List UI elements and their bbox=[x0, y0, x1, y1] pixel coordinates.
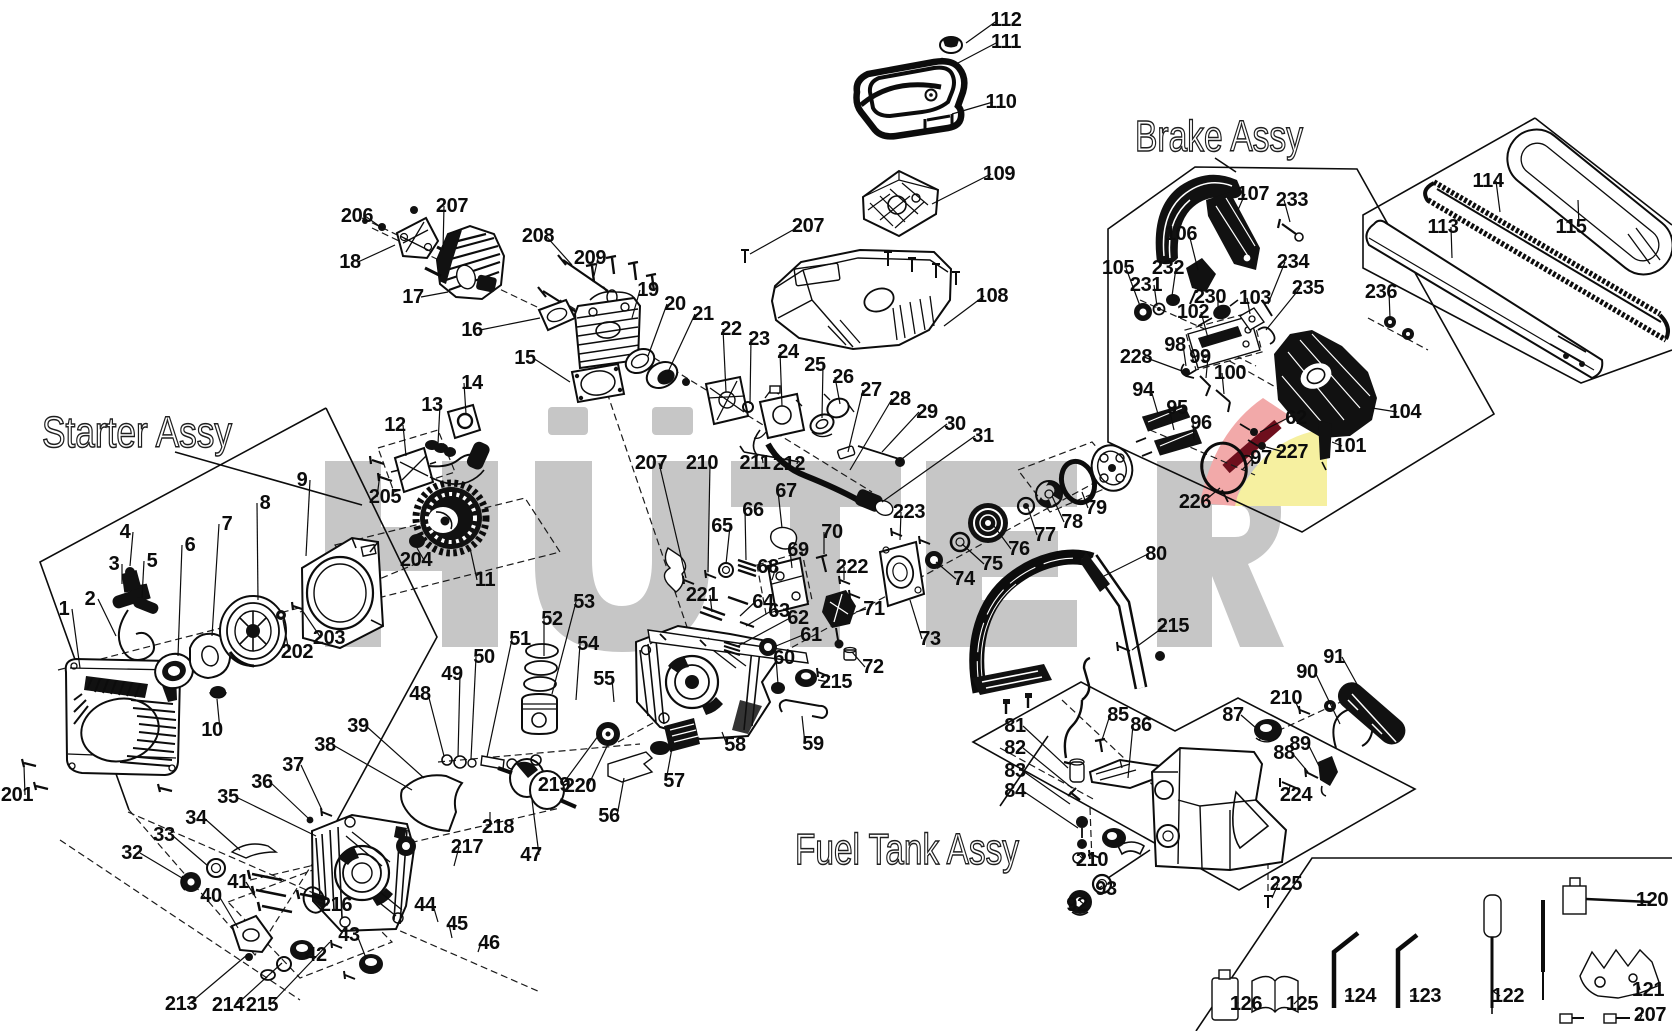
svg-text:210: 210 bbox=[1270, 687, 1302, 709]
svg-text:97: 97 bbox=[1250, 447, 1272, 469]
svg-text:124: 124 bbox=[1344, 985, 1377, 1007]
svg-text:76: 76 bbox=[1008, 538, 1030, 560]
svg-text:62: 62 bbox=[787, 607, 809, 629]
svg-text:26: 26 bbox=[832, 366, 854, 388]
svg-text:15: 15 bbox=[514, 347, 536, 369]
svg-text:70: 70 bbox=[821, 521, 843, 543]
svg-text:96: 96 bbox=[1190, 412, 1212, 434]
svg-text:226: 226 bbox=[1179, 491, 1211, 513]
svg-text:3: 3 bbox=[109, 553, 120, 575]
svg-text:223: 223 bbox=[893, 501, 925, 523]
svg-text:81: 81 bbox=[1004, 715, 1026, 737]
svg-text:34: 34 bbox=[185, 807, 208, 829]
svg-text:80: 80 bbox=[1145, 543, 1167, 565]
svg-text:6: 6 bbox=[185, 534, 196, 556]
svg-text:214: 214 bbox=[212, 994, 245, 1016]
svg-text:208: 208 bbox=[522, 225, 554, 247]
svg-text:43: 43 bbox=[338, 924, 360, 946]
svg-text:72: 72 bbox=[862, 656, 884, 678]
svg-text:44: 44 bbox=[414, 894, 437, 916]
svg-text:21: 21 bbox=[692, 303, 714, 325]
svg-text:90: 90 bbox=[1296, 661, 1318, 683]
svg-text:104: 104 bbox=[1389, 401, 1422, 423]
svg-text:32: 32 bbox=[121, 842, 143, 864]
svg-text:40: 40 bbox=[200, 885, 222, 907]
svg-text:18: 18 bbox=[339, 251, 361, 273]
svg-text:Fuel Tank Assy: Fuel Tank Assy bbox=[795, 825, 1019, 874]
svg-text:233: 233 bbox=[1276, 189, 1308, 211]
svg-text:74: 74 bbox=[953, 568, 976, 590]
svg-text:215: 215 bbox=[820, 671, 852, 693]
svg-text:53: 53 bbox=[573, 591, 595, 613]
svg-text:59: 59 bbox=[802, 733, 824, 755]
svg-text:115: 115 bbox=[1555, 216, 1586, 238]
svg-text:62: 62 bbox=[1285, 407, 1307, 429]
svg-text:102: 102 bbox=[1177, 301, 1209, 323]
svg-text:113: 113 bbox=[1427, 216, 1458, 238]
svg-text:210: 210 bbox=[1076, 849, 1108, 871]
svg-text:109: 109 bbox=[983, 163, 1015, 185]
svg-text:77: 77 bbox=[1034, 524, 1056, 546]
svg-text:94: 94 bbox=[1132, 379, 1155, 401]
svg-text:206: 206 bbox=[341, 205, 373, 227]
svg-text:85: 85 bbox=[1107, 704, 1129, 726]
svg-text:49: 49 bbox=[441, 663, 463, 685]
svg-text:36: 36 bbox=[251, 771, 273, 793]
svg-text:20: 20 bbox=[664, 293, 686, 315]
svg-text:100: 100 bbox=[1214, 362, 1246, 384]
svg-text:2: 2 bbox=[85, 588, 96, 610]
svg-text:221: 221 bbox=[686, 584, 718, 606]
svg-text:58: 58 bbox=[724, 734, 746, 756]
svg-text:64: 64 bbox=[752, 591, 775, 613]
svg-text:11: 11 bbox=[475, 569, 496, 591]
svg-text:225: 225 bbox=[1270, 873, 1302, 895]
svg-text:114: 114 bbox=[1472, 170, 1504, 192]
svg-text:10: 10 bbox=[201, 719, 223, 741]
svg-text:207: 207 bbox=[792, 215, 824, 237]
svg-text:106: 106 bbox=[1165, 223, 1197, 245]
svg-text:220: 220 bbox=[564, 775, 596, 797]
svg-text:215: 215 bbox=[246, 994, 278, 1016]
svg-text:60: 60 bbox=[773, 647, 795, 669]
svg-text:92: 92 bbox=[1066, 894, 1088, 916]
svg-text:69: 69 bbox=[787, 539, 809, 561]
svg-text:222: 222 bbox=[836, 556, 868, 578]
svg-text:27: 27 bbox=[860, 379, 882, 401]
svg-text:71: 71 bbox=[863, 598, 885, 620]
svg-text:125: 125 bbox=[1286, 993, 1318, 1015]
svg-text:78: 78 bbox=[1061, 511, 1083, 533]
svg-text:108: 108 bbox=[976, 285, 1008, 307]
svg-text:95: 95 bbox=[1166, 397, 1188, 419]
svg-text:Starter Assy: Starter Assy bbox=[42, 408, 232, 457]
svg-text:35: 35 bbox=[217, 786, 239, 808]
svg-text:1: 1 bbox=[59, 598, 70, 620]
svg-text:7: 7 bbox=[222, 513, 233, 535]
svg-text:14: 14 bbox=[461, 372, 484, 394]
svg-text:215: 215 bbox=[1157, 615, 1189, 637]
svg-text:46: 46 bbox=[478, 932, 500, 954]
svg-text:98: 98 bbox=[1164, 334, 1186, 356]
svg-text:234: 234 bbox=[1277, 251, 1310, 273]
svg-text:224: 224 bbox=[1280, 784, 1313, 806]
svg-text:123: 123 bbox=[1409, 985, 1441, 1007]
svg-text:89: 89 bbox=[1289, 733, 1311, 755]
svg-text:19: 19 bbox=[637, 279, 659, 301]
svg-text:39: 39 bbox=[347, 715, 369, 737]
svg-text:218: 218 bbox=[482, 816, 514, 838]
svg-text:122: 122 bbox=[1492, 985, 1524, 1007]
svg-text:9: 9 bbox=[297, 469, 308, 491]
svg-text:103: 103 bbox=[1239, 287, 1271, 309]
svg-text:48: 48 bbox=[409, 683, 431, 705]
svg-text:12: 12 bbox=[384, 414, 406, 436]
svg-text:4: 4 bbox=[120, 521, 132, 543]
svg-text:207: 207 bbox=[635, 452, 667, 474]
svg-text:84: 84 bbox=[1004, 780, 1027, 802]
svg-text:82: 82 bbox=[1004, 737, 1026, 759]
svg-text:42: 42 bbox=[305, 944, 327, 966]
svg-text:56: 56 bbox=[598, 805, 620, 827]
svg-text:41: 41 bbox=[227, 871, 249, 893]
svg-text:51: 51 bbox=[509, 628, 531, 650]
svg-text:235: 235 bbox=[1292, 277, 1324, 299]
svg-text:68: 68 bbox=[757, 556, 779, 578]
svg-text:86: 86 bbox=[1130, 714, 1152, 736]
svg-text:29: 29 bbox=[916, 401, 938, 423]
svg-text:50: 50 bbox=[473, 646, 495, 668]
svg-text:101: 101 bbox=[1334, 435, 1366, 457]
svg-text:22: 22 bbox=[720, 318, 742, 340]
svg-text:65: 65 bbox=[711, 515, 733, 537]
svg-text:79: 79 bbox=[1085, 497, 1107, 519]
svg-text:228: 228 bbox=[1120, 346, 1152, 368]
svg-text:93: 93 bbox=[1095, 878, 1117, 900]
svg-text:111: 111 bbox=[991, 31, 1021, 53]
svg-text:213: 213 bbox=[165, 993, 197, 1015]
svg-text:54: 54 bbox=[577, 633, 600, 655]
svg-text:107: 107 bbox=[1237, 183, 1269, 205]
svg-text:236: 236 bbox=[1365, 281, 1397, 303]
svg-text:Brake Assy: Brake Assy bbox=[1135, 112, 1303, 161]
svg-text:52: 52 bbox=[541, 608, 563, 630]
svg-text:110: 110 bbox=[985, 91, 1016, 113]
svg-text:216: 216 bbox=[320, 894, 352, 916]
svg-text:203: 203 bbox=[313, 627, 345, 649]
svg-text:87: 87 bbox=[1222, 704, 1244, 726]
svg-text:202: 202 bbox=[281, 641, 313, 663]
svg-text:45: 45 bbox=[446, 913, 468, 935]
svg-text:23: 23 bbox=[748, 328, 770, 350]
svg-text:37: 37 bbox=[282, 754, 304, 776]
svg-text:231: 231 bbox=[1130, 274, 1162, 296]
svg-text:207: 207 bbox=[1634, 1004, 1666, 1026]
svg-text:31: 31 bbox=[972, 425, 994, 447]
svg-text:57: 57 bbox=[663, 770, 685, 792]
svg-text:207: 207 bbox=[436, 195, 468, 217]
svg-text:120: 120 bbox=[1636, 889, 1668, 911]
svg-text:38: 38 bbox=[314, 734, 336, 756]
svg-text:99: 99 bbox=[1189, 346, 1211, 368]
svg-text:91: 91 bbox=[1323, 646, 1345, 668]
svg-text:126: 126 bbox=[1230, 993, 1262, 1015]
svg-text:204: 204 bbox=[400, 549, 433, 571]
svg-text:209: 209 bbox=[574, 247, 606, 269]
svg-text:210: 210 bbox=[686, 452, 718, 474]
svg-text:75: 75 bbox=[981, 553, 1003, 575]
svg-text:67: 67 bbox=[775, 480, 797, 502]
svg-text:25: 25 bbox=[804, 354, 826, 376]
svg-text:73: 73 bbox=[919, 628, 941, 650]
svg-text:16: 16 bbox=[461, 319, 483, 341]
svg-text:201: 201 bbox=[1, 784, 33, 806]
svg-text:33: 33 bbox=[153, 824, 175, 846]
svg-text:227: 227 bbox=[1276, 441, 1308, 463]
svg-text:28: 28 bbox=[889, 388, 911, 410]
svg-text:66: 66 bbox=[742, 499, 764, 521]
svg-text:30: 30 bbox=[944, 413, 966, 435]
svg-text:17: 17 bbox=[402, 286, 424, 308]
svg-text:212: 212 bbox=[773, 453, 805, 475]
svg-text:13: 13 bbox=[421, 394, 443, 416]
svg-text:83: 83 bbox=[1004, 760, 1026, 782]
svg-text:205: 205 bbox=[369, 486, 401, 508]
svg-text:8: 8 bbox=[260, 492, 271, 514]
svg-text:112: 112 bbox=[990, 9, 1021, 31]
svg-text:55: 55 bbox=[593, 668, 615, 690]
svg-text:217: 217 bbox=[451, 836, 483, 858]
svg-text:121: 121 bbox=[1632, 979, 1664, 1001]
svg-text:211: 211 bbox=[739, 452, 770, 474]
svg-text:24: 24 bbox=[777, 341, 800, 363]
svg-text:47: 47 bbox=[520, 844, 542, 866]
svg-text:5: 5 bbox=[147, 550, 158, 572]
